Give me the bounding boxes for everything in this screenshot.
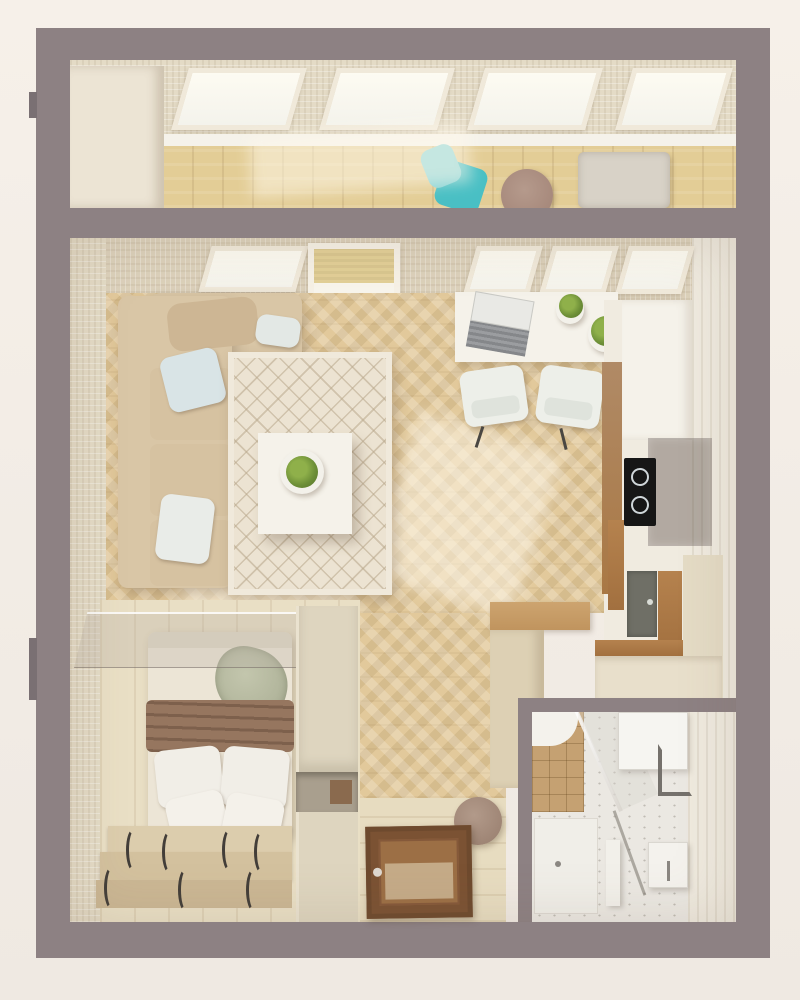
washbasin-faucet <box>667 861 670 881</box>
wall-notch-mid <box>29 638 37 700</box>
wall-bottom <box>36 922 770 958</box>
washing-machine <box>618 712 688 770</box>
bathroom-partition <box>606 840 620 906</box>
bedroom-glass-partition <box>74 612 296 668</box>
chair-2-leg <box>559 428 567 450</box>
sofa-back-cushion <box>166 295 261 352</box>
laptop <box>465 291 536 359</box>
coffee-table-plant <box>286 456 318 488</box>
cooktop-burner-2 <box>631 496 649 514</box>
balcony-window-1 <box>171 68 307 130</box>
podium-step-3 <box>96 880 292 908</box>
wall-top <box>36 28 770 60</box>
bed-blanket <box>146 700 294 752</box>
floor-plan-canvas <box>0 0 800 1000</box>
bathtub-faucet <box>555 861 561 867</box>
kitchen <box>595 298 736 698</box>
entrance-door <box>365 825 473 919</box>
kitchen-counter-top <box>622 300 692 440</box>
desk-skylight-3 <box>615 246 695 294</box>
kitchen-counter-beige-bottom <box>595 656 722 698</box>
balcony-door-blind <box>314 249 394 283</box>
cooktop-burner-1 <box>631 468 649 486</box>
bathroom <box>532 712 736 922</box>
wardrobe-lower <box>296 812 358 922</box>
kitchen-glass-panel <box>648 438 712 546</box>
wall-balcony-divider <box>66 208 738 238</box>
wardrobe-upper <box>296 606 358 772</box>
kitchen-sink <box>627 571 657 637</box>
podium-handle-5 <box>104 866 120 910</box>
balcony-window-3 <box>467 68 603 130</box>
balcony-window-4 <box>615 68 733 130</box>
desk-skylight-1 <box>463 246 543 294</box>
podium-handle-6 <box>178 868 194 912</box>
wall-left <box>36 28 70 958</box>
sink-faucet <box>647 599 653 605</box>
entry-cabinet-top <box>490 602 590 630</box>
chair-1-leg <box>475 426 485 448</box>
bathtub-area <box>534 818 598 914</box>
podium-handle-3 <box>222 828 238 872</box>
podium-handle-2 <box>162 830 178 874</box>
sink-wood-bottom <box>595 640 683 656</box>
wardrobe-shelf-gap <box>296 772 358 812</box>
podium-handle-1 <box>126 828 142 872</box>
wardrobe-shelf-item <box>330 780 352 804</box>
washbasin <box>648 842 688 888</box>
dining-chair-1 <box>458 364 529 428</box>
podium-handle-7 <box>246 868 262 912</box>
entrance-door-handle <box>373 868 382 877</box>
sink-wood-left <box>608 520 624 610</box>
chair-2-seatline <box>543 397 593 422</box>
bathroom-right-wall <box>688 712 736 922</box>
cooktop <box>624 458 656 526</box>
bathroom-wall-left <box>518 698 532 922</box>
bathroom-wall-top <box>518 698 736 712</box>
chair-1-seatline <box>471 395 521 420</box>
wall-right <box>736 28 770 958</box>
living-skylight <box>198 246 308 292</box>
bed-podium-steps <box>96 826 292 908</box>
bedroom <box>70 595 370 922</box>
desk-plant-1 <box>559 294 583 318</box>
sofa-pillow-pale <box>254 313 302 349</box>
balcony-ottoman <box>578 152 670 208</box>
balcony-cabinet <box>70 66 164 208</box>
wall-notch-top <box>29 92 37 118</box>
balcony <box>70 60 736 208</box>
balcony-window-2 <box>319 68 455 130</box>
entrance-door-glass <box>385 862 454 899</box>
podium-handle-4 <box>254 830 270 874</box>
sofa-pillow-white <box>154 493 216 565</box>
desk-skylight-2 <box>539 246 619 294</box>
